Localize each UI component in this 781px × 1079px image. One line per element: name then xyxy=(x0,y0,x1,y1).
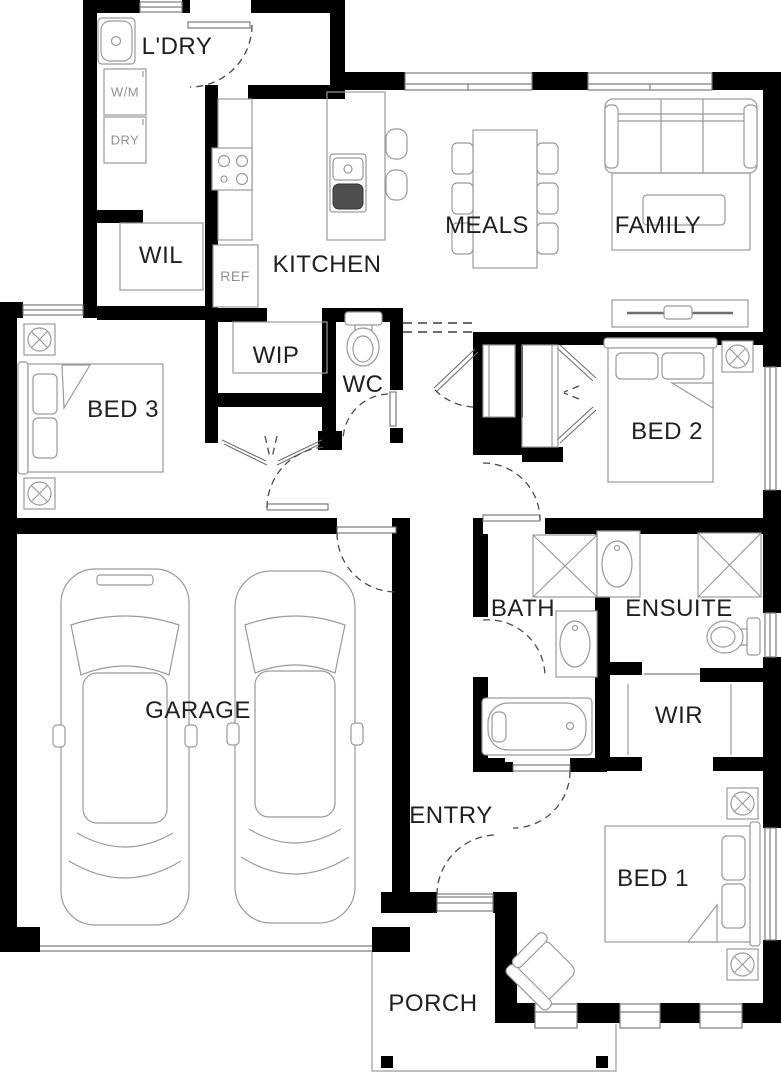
bed1-door xyxy=(513,765,570,828)
meals-furniture xyxy=(452,130,558,268)
room-label-wip: WIP xyxy=(253,342,300,370)
appliance-label-wm: W/M xyxy=(111,85,139,100)
room-label-ensuite: ENSUITE xyxy=(625,595,733,623)
shower-icon xyxy=(698,533,761,597)
stool xyxy=(386,170,407,200)
room-label-wil: WIL xyxy=(139,242,183,270)
room-label-garage: GARAGE xyxy=(145,697,251,725)
room-label-entry: ENTRY xyxy=(409,802,492,830)
dining-table xyxy=(473,130,537,268)
bed2-hall-door xyxy=(483,463,540,521)
light-symbol xyxy=(722,341,753,372)
appliance-label-dry: DRY xyxy=(111,133,140,148)
bed2-window xyxy=(765,367,776,490)
shower-icon xyxy=(533,535,597,597)
toilet-icon xyxy=(707,618,760,655)
room-label-porch: PORCH xyxy=(388,990,477,1018)
stool xyxy=(386,129,407,159)
porch-post xyxy=(596,1056,608,1068)
car-icon xyxy=(53,569,197,925)
bed1-side-window xyxy=(765,828,776,940)
sofa-icon xyxy=(605,99,757,173)
bathtub-icon xyxy=(482,698,592,755)
toilet-icon xyxy=(345,312,382,366)
chair xyxy=(537,143,558,174)
garage-cars xyxy=(53,569,363,925)
hall-bulkhead-dashes xyxy=(403,323,473,332)
cooktop-icon xyxy=(212,148,252,190)
light-symbol xyxy=(727,949,758,980)
chair xyxy=(537,183,558,214)
hall-south-door xyxy=(267,447,328,510)
ensuite-window xyxy=(765,613,776,657)
room-label-family: FAMILY xyxy=(615,212,702,240)
floor-plan: L'DRY W/M DRY WIL KITCHEN REF WIP WC MEA… xyxy=(0,0,781,1079)
light-symbol xyxy=(727,788,758,819)
appliance-label-ref: REF xyxy=(220,268,250,284)
chair xyxy=(537,223,558,254)
room-label-bed2: BED 2 xyxy=(631,418,703,446)
chair xyxy=(452,143,473,174)
family-window xyxy=(588,73,712,90)
room-label-wc: WC xyxy=(343,371,384,399)
chair xyxy=(452,183,473,214)
laundry-window xyxy=(140,2,182,12)
ensuite-vanity-icon xyxy=(597,531,640,597)
car-icon xyxy=(227,571,363,923)
ensuite-fixtures xyxy=(597,531,761,655)
wc-fixtures xyxy=(345,312,382,366)
hall-west-door xyxy=(434,349,478,407)
floorplan-drawing xyxy=(0,0,781,1079)
meals-window xyxy=(405,73,532,90)
laundry-trough-icon xyxy=(98,18,135,64)
room-label-wir: WIR xyxy=(655,702,703,730)
light-symbol xyxy=(24,324,55,355)
wc-door xyxy=(343,392,396,441)
bed3-window xyxy=(23,305,83,315)
bath-fixtures xyxy=(482,535,597,755)
front-door xyxy=(437,835,497,903)
porch-post xyxy=(381,1056,393,1068)
bath-vanity-icon xyxy=(556,611,597,677)
room-label-bath: BATH xyxy=(491,595,555,623)
bed1-front-windows xyxy=(535,1004,742,1028)
bath-door xyxy=(483,620,545,677)
bed2-bed-icon xyxy=(604,338,717,482)
tv-unit-icon xyxy=(612,300,748,327)
bed2-robe-doors xyxy=(557,345,596,443)
kitchen-sink-icon xyxy=(330,154,366,212)
room-label-meals: MEALS xyxy=(445,212,529,240)
bed1-furniture xyxy=(503,788,760,1012)
light-symbol xyxy=(24,478,55,509)
room-label-bed1: BED 1 xyxy=(617,865,689,893)
room-label-bed3: BED 3 xyxy=(87,396,159,424)
room-label-laundry: L'DRY xyxy=(142,33,213,61)
garage-door-line xyxy=(40,946,372,951)
room-label-kitchen: KITCHEN xyxy=(273,251,382,279)
